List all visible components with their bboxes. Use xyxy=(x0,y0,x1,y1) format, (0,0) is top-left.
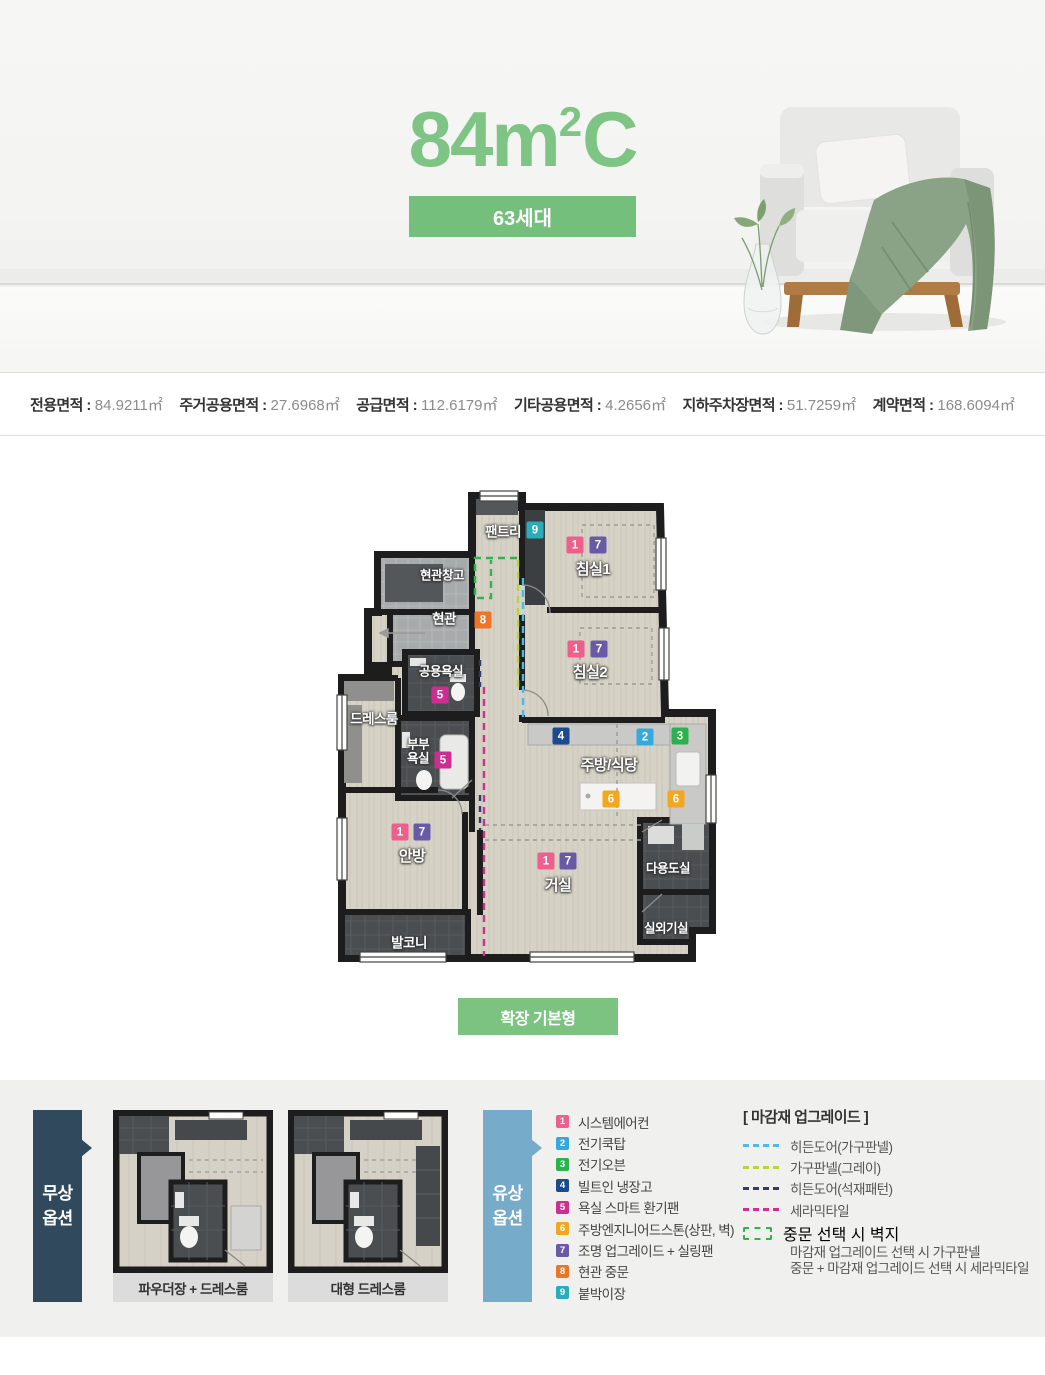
paid-option-row: 6주방엔지니어드스톤(상판, 벽) xyxy=(556,1218,734,1239)
finish-box-line1: 중문 선택 시 벽지 xyxy=(783,1221,899,1245)
room-label-utility: 다용도실 xyxy=(646,862,690,876)
room-label-master: 안방 xyxy=(399,849,426,865)
free-options-tab: 무상 옵션 xyxy=(33,1110,82,1302)
bathroom-plan-image xyxy=(113,1110,273,1273)
finish-label: 세라믹타일 xyxy=(790,1200,849,1220)
area-value: 168.6094㎡ xyxy=(937,397,1015,414)
plan-badge-7: 7 xyxy=(590,537,607,554)
paid-option-row: 2전기쿡탑 xyxy=(556,1132,734,1153)
paid-options-tab: 유상 옵션 xyxy=(483,1110,532,1302)
room-label-bedroom1: 침실1 xyxy=(576,562,610,578)
paid-option-row: 1시스템에어컨 xyxy=(556,1111,734,1132)
plan-badge-8: 8 xyxy=(475,612,492,629)
options-panel: 무상 옵션 파우더장 + 드 xyxy=(0,1080,1045,1337)
area-label: 계약면적 : xyxy=(873,397,934,414)
paid-tab-line1: 유상 xyxy=(492,1181,522,1206)
option-number-badge: 6 xyxy=(556,1222,569,1235)
paid-option-row: 9붙박이장 xyxy=(556,1282,734,1303)
free-option-card-large-dress: 대형 드레스룸 xyxy=(288,1110,448,1302)
free-option-card-powder-dress: 파우더장 + 드레스룸 xyxy=(113,1110,273,1302)
armchair-illustration xyxy=(732,82,1022,340)
area-label: 주거공용면적 : xyxy=(179,397,266,414)
plan-badge-4: 4 xyxy=(553,728,570,745)
dash-swatch-hidden-door-panel xyxy=(743,1144,779,1147)
area-value: 112.6179㎡ xyxy=(421,397,497,414)
free-option-caption: 대형 드레스룸 xyxy=(288,1273,448,1302)
option-label: 조명 업그레이드 + 실링팬 xyxy=(578,1240,713,1260)
room-label-dressroom: 드레스룸 xyxy=(350,713,398,728)
finish-upgrade-legend: [ 마감재 업그레이드 ] 히든도어(가구판넬) 가구판넬(그레이) 히든도어(… xyxy=(743,1106,1043,1278)
room-label-bath-master: 부부 욕실 xyxy=(407,739,429,766)
plan-badge-2: 2 xyxy=(637,729,654,746)
plan-badge-6: 6 xyxy=(668,791,685,808)
finish-legend-row: 히든도어(가구판넬) xyxy=(743,1135,1043,1156)
option-label: 시스템에어컨 xyxy=(578,1112,649,1132)
room-label-balcony: 발코니 xyxy=(391,937,427,952)
page: 84m2C 63세대 xyxy=(0,0,1045,1375)
plan-badge-5: 5 xyxy=(435,752,452,769)
option-number-badge: 7 xyxy=(556,1244,569,1257)
units-count-badge: 63세대 xyxy=(409,196,636,237)
finish-box-line2: 마감재 업그레이드 선택 시 가구판넬 xyxy=(790,1245,1043,1262)
area-info-item: 공급면적 :112.6179㎡ xyxy=(356,394,497,415)
area-info-item: 계약면적 :168.6094㎡ xyxy=(873,394,1015,415)
expand-type-label: 확장 기본형 xyxy=(458,998,618,1035)
paid-option-row: 4빌트인 냉장고 xyxy=(556,1175,734,1196)
room-label-outdoor-unit: 실외기실 xyxy=(644,922,688,936)
room-label-living: 거실 xyxy=(545,878,572,894)
option-label: 주방엔지니어드스톤(상판, 벽) xyxy=(578,1219,734,1239)
free-tab-line1: 무상 xyxy=(42,1181,72,1206)
plan-badge-1: 1 xyxy=(568,641,585,658)
finish-box-line3: 중문 + 마감재 업그레이드 선택 시 세라믹타일 xyxy=(790,1261,1043,1278)
bathroom-plan-image xyxy=(288,1110,448,1273)
paid-option-row: 8현관 중문 xyxy=(556,1261,734,1282)
option-label: 빌트인 냉장고 xyxy=(578,1176,652,1196)
plan-badge-1: 1 xyxy=(538,853,555,870)
plan-badge-3: 3 xyxy=(672,728,689,745)
plan-badge-1: 1 xyxy=(567,537,584,554)
area-info-item: 주거공용면적 :27.6968㎡ xyxy=(179,394,339,415)
area-value: 4.2656㎡ xyxy=(605,397,666,414)
paid-option-row: 7조명 업그레이드 + 실링팬 xyxy=(556,1239,734,1260)
area-value: 84.9211㎡ xyxy=(95,397,163,414)
finish-legend-row: 세라믹타일 xyxy=(743,1199,1043,1220)
finish-legend-row: 히든도어(석재패턴) xyxy=(743,1178,1043,1199)
option-label: 전기오븐 xyxy=(578,1154,625,1174)
plan-badge-1: 1 xyxy=(392,824,409,841)
finish-legend-row: 가구판넬(그레이) xyxy=(743,1156,1043,1177)
plan-badge-7: 7 xyxy=(414,824,431,841)
finish-label: 히든도어(가구판넬) xyxy=(790,1136,892,1156)
area-info-item: 전용면적 :84.9211㎡ xyxy=(30,394,163,415)
room-label-pantry: 팬트리 xyxy=(485,526,521,541)
finish-legend-box-row: 중문 선택 시 벽지 xyxy=(743,1222,1043,1245)
dashed-box-swatch xyxy=(743,1227,772,1240)
dash-swatch-ceramic-tile xyxy=(743,1208,779,1211)
plan-badge-9: 9 xyxy=(527,522,544,539)
option-number-badge: 8 xyxy=(556,1265,569,1278)
plan-badge-6: 6 xyxy=(603,791,620,808)
armchair-photo xyxy=(732,82,1022,340)
paid-options-legend: 1시스템에어컨 2전기쿡탑 3전기오븐 4빌트인 냉장고 5욕실 스마트 환기팬… xyxy=(556,1111,734,1304)
area-info-item: 기타공용면적 :4.2656㎡ xyxy=(514,394,666,415)
option-number-badge: 4 xyxy=(556,1179,569,1192)
option-label: 현관 중문 xyxy=(578,1261,628,1281)
floor-plan-graphic xyxy=(330,480,730,990)
option-number-badge: 2 xyxy=(556,1137,569,1150)
paid-tab-line2: 옵션 xyxy=(492,1206,522,1231)
dash-swatch-furniture-panel xyxy=(743,1166,779,1169)
free-option-caption: 파우더장 + 드레스룸 xyxy=(113,1273,273,1302)
area-label: 지하주차장면적 : xyxy=(683,397,783,414)
area-label: 기타공용면적 : xyxy=(514,397,601,414)
plan-badge-7: 7 xyxy=(560,853,577,870)
area-info-bar: 전용면적 :84.9211㎡ 주거공용면적 :27.6968㎡ 공급면적 :11… xyxy=(0,372,1045,436)
option-label: 욕실 스마트 환기팬 xyxy=(578,1197,679,1217)
option-number-badge: 3 xyxy=(556,1158,569,1171)
option-number-badge: 5 xyxy=(556,1201,569,1214)
option-number-badge: 9 xyxy=(556,1286,569,1299)
title-tail: C xyxy=(582,95,636,183)
plan-badge-7: 7 xyxy=(591,641,608,658)
paid-option-row: 3전기오븐 xyxy=(556,1154,734,1175)
area-info-item: 지하주차장면적 :51.7259㎡ xyxy=(683,394,857,415)
paid-option-row: 5욕실 스마트 환기팬 xyxy=(556,1197,734,1218)
option-label: 전기쿡탑 xyxy=(578,1133,625,1153)
option-label: 붙박이장 xyxy=(578,1283,625,1303)
free-tab-line2: 옵션 xyxy=(42,1206,72,1231)
title-main: 84m xyxy=(409,95,559,183)
floor-plan: 팬트리 현관창고 현관 침실1 침실2 공용욕실 드레스룸 부부 욕실 주방/식… xyxy=(330,480,730,990)
hero-section: 84m2C 63세대 xyxy=(0,0,1045,372)
plan-badge-5: 5 xyxy=(432,687,449,704)
area-value: 51.7259㎡ xyxy=(787,397,856,414)
room-label-entry-storage: 현관창고 xyxy=(420,569,464,583)
finish-label: 히든도어(석재패턴) xyxy=(790,1178,892,1198)
title-superscript: 2 xyxy=(559,98,582,145)
option-number-badge: 1 xyxy=(556,1115,569,1128)
area-label: 공급면적 : xyxy=(356,397,417,414)
finish-legend-title: [ 마감재 업그레이드 ] xyxy=(743,1106,1043,1127)
finish-label: 가구판넬(그레이) xyxy=(790,1157,881,1177)
area-label: 전용면적 : xyxy=(30,397,91,414)
dash-swatch-hidden-door-stone xyxy=(743,1187,779,1190)
room-label-entry: 현관 xyxy=(432,613,456,628)
room-label-bedroom2: 침실2 xyxy=(573,665,607,681)
area-value: 27.6968㎡ xyxy=(271,397,340,414)
room-label-kitchen: 주방/식당 xyxy=(581,758,638,774)
room-label-bath-common: 공용욕실 xyxy=(419,665,463,679)
